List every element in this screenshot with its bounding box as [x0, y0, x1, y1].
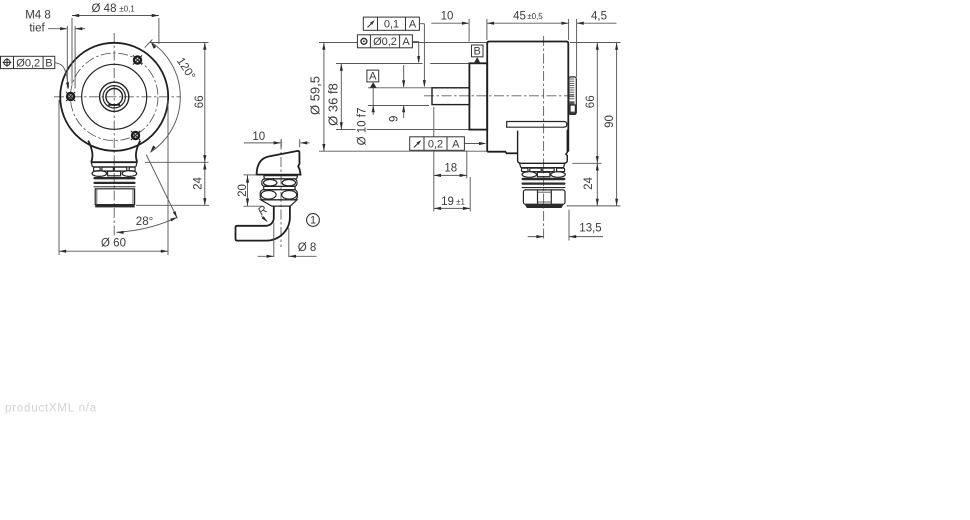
svg-text:Ø0,2: Ø0,2	[16, 57, 40, 69]
svg-text:18: 18	[444, 162, 457, 174]
svg-text:±1: ±1	[456, 197, 465, 206]
svg-text:19: 19	[441, 196, 454, 208]
svg-text:0,1: 0,1	[384, 19, 399, 31]
svg-text:24: 24	[192, 177, 204, 190]
svg-text:20: 20	[237, 184, 249, 197]
svg-text:90: 90	[604, 115, 616, 128]
svg-text:±0,1: ±0,1	[119, 4, 135, 13]
svg-text:Ø 60: Ø 60	[101, 238, 126, 250]
svg-text:Ø 48: Ø 48	[92, 3, 117, 15]
svg-text:B: B	[474, 46, 481, 58]
svg-text:Ø 36 f8: Ø 36 f8	[326, 83, 341, 126]
svg-text:10: 10	[441, 11, 454, 23]
svg-text:productXML n/a: productXML n/a	[5, 403, 97, 415]
svg-text:Ø0,2: Ø0,2	[373, 36, 397, 48]
svg-text:1: 1	[310, 215, 316, 227]
svg-text:B: B	[45, 57, 52, 69]
svg-text:13,5: 13,5	[579, 222, 601, 234]
svg-text:Ø 10 f7: Ø 10 f7	[357, 108, 369, 146]
svg-text:A: A	[452, 138, 460, 150]
svg-text:10: 10	[252, 131, 265, 143]
svg-text:tief: tief	[29, 23, 45, 35]
svg-text:0,2: 0,2	[428, 138, 443, 150]
svg-text:9: 9	[388, 116, 400, 122]
svg-text:A: A	[369, 71, 377, 83]
svg-text:24: 24	[583, 177, 595, 190]
svg-text:45: 45	[513, 11, 526, 23]
svg-text:66: 66	[585, 95, 597, 108]
svg-text:M4 8: M4 8	[25, 10, 51, 22]
svg-text:Ø 8: Ø 8	[298, 242, 317, 254]
svg-text:±0,5: ±0,5	[527, 12, 543, 21]
svg-text:4,5: 4,5	[591, 11, 607, 23]
svg-text:66: 66	[194, 95, 206, 108]
svg-text:Ø 59,5: Ø 59,5	[307, 76, 322, 115]
svg-text:A: A	[402, 36, 410, 48]
svg-text:A: A	[409, 19, 417, 31]
svg-text:28°: 28°	[136, 216, 153, 228]
